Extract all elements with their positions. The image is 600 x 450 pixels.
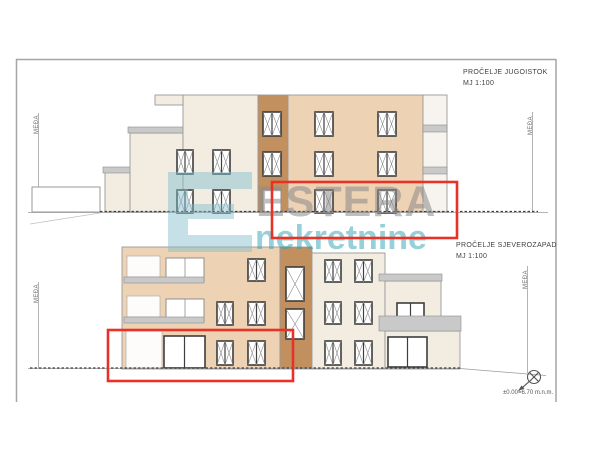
scale-label: MJ 1:100	[463, 79, 548, 90]
elevation-note: ±0.00=6.70 m.n.m.	[503, 390, 553, 396]
boundary-label: MEĐA	[523, 270, 529, 289]
elevation-title-southeast: PROČELJE JUGOISTOK MJ 1:100	[463, 68, 548, 89]
scale-label: MJ 1:100	[456, 252, 557, 263]
boundary-label: MEĐA	[528, 116, 534, 135]
elevation-title: PROČELJE JUGOISTOK	[463, 68, 548, 79]
architectural-drawing-sheet: ESTERA nekretnine PROČELJE JUGOISTOK MJ …	[0, 0, 600, 450]
elevation-title: PROČELJE SJEVEROZAPAD	[456, 241, 557, 252]
boundary-label: MEĐA	[34, 115, 40, 134]
elevation-title-northwest: PROČELJE SJEVEROZAPAD MJ 1:100	[456, 241, 557, 262]
highlight-unit-northwest	[108, 330, 293, 381]
highlight-unit-southeast	[272, 182, 457, 238]
boundary-label: MEĐA	[34, 284, 40, 303]
